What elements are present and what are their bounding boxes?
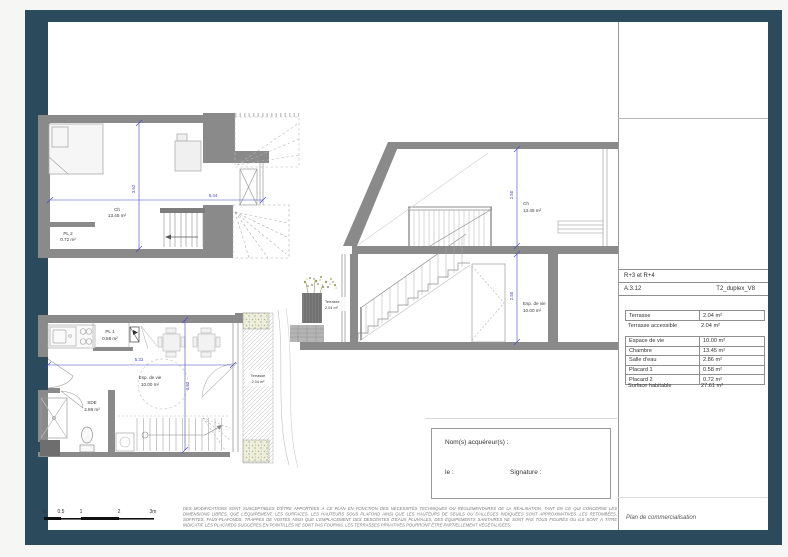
- area-row-terrasse-accessible: Terrasse accessible 2.04 m²: [625, 321, 763, 330]
- entry-door: [48, 359, 73, 388]
- plants: [304, 276, 337, 293]
- area-row-surface-habitable: Surface habitable 27.61 m²: [625, 381, 763, 390]
- lower-height-dim: 3.52: [185, 381, 190, 390]
- section-bedroom-area: 13.45 m²: [523, 208, 542, 213]
- area-label: Terrasse: [626, 311, 700, 320]
- balcony-door: [240, 163, 263, 205]
- disclaimer-text: DES MODIFICATIONS SONT SUSCEPTIBLES D'ÊT…: [183, 506, 617, 528]
- area-row-placard-1: Placard 1 0.58 m²: [626, 366, 764, 376]
- doc-type-label: Plan de commercialisation: [626, 515, 696, 521]
- bathroom-label: SDE: [87, 400, 96, 405]
- plan-name: T2_duplex_V8: [624, 283, 755, 295]
- area-label: Placard 1: [626, 366, 700, 375]
- terrace-strip: Terrasse 2.04 m²: [243, 308, 298, 468]
- terrace-area: 2.04 m²: [252, 380, 266, 384]
- scale-label: 1: [80, 509, 83, 515]
- living-area: 10.00 m²: [141, 382, 160, 387]
- scale-label: 2: [118, 509, 121, 515]
- separator-line: [425, 418, 617, 419]
- scale-label: 3m: [150, 509, 157, 515]
- section-bedroom-label: Ch: [523, 201, 529, 206]
- scale-bar: 0 0.5 1 2 3m: [40, 504, 165, 526]
- area-value: 0.58 m²: [700, 367, 722, 373]
- scale-bar-segments: [44, 517, 154, 520]
- landscape-line: [286, 308, 298, 468]
- bedroom-label: Ch: [114, 207, 120, 212]
- upper-height-dim: 3.52: [131, 184, 136, 193]
- section-living-area: 10.00 m²: [523, 308, 542, 313]
- buyer-title: Nom(s) acquéreur(s) :: [445, 439, 509, 446]
- area-label: Chambre: [626, 347, 700, 356]
- area-label: Espace de vie: [626, 337, 700, 346]
- bathroom-area: 2.86 m²: [84, 407, 100, 412]
- scale-label: 0: [43, 509, 46, 515]
- section-terrace-area: 2.04 m²: [325, 306, 339, 310]
- hall-door: [141, 326, 157, 349]
- bed: [49, 124, 103, 174]
- upper-right-wall: [603, 149, 607, 246]
- duct-symbol: [130, 327, 139, 342]
- terrace-door: [202, 363, 237, 397]
- kitchen: [48, 325, 95, 348]
- scale-label: 0.5: [58, 509, 65, 515]
- section-terrace-label: Terrasse: [325, 300, 340, 304]
- lower-floor-plan: Terrasse 2.04 m² 5.32 3.52 Esp. de vie 1…: [35, 300, 300, 470]
- upper-floor-plan: 3.52 5.44 Ch 13.45 m² PL 2 0.72 m²: [35, 105, 312, 267]
- area-label: Terrasse accessible: [625, 323, 698, 329]
- living-label: Esp. de vie: [139, 375, 162, 380]
- area-value: 2.04 m²: [700, 313, 722, 319]
- title-block-line: [618, 118, 768, 119]
- title-block-divider: [618, 22, 619, 530]
- lower-level-height: 2.50: [509, 291, 514, 300]
- washer: [116, 433, 134, 451]
- upper-level-height: 2.50: [509, 190, 514, 199]
- lower-width-dim: 5.32: [135, 357, 144, 362]
- closet1-outline: [93, 323, 129, 347]
- area-row-chambre: Chambre 13.45 m²: [626, 347, 764, 357]
- section-door: [472, 264, 505, 342]
- area-value: 2.86 m²: [700, 357, 722, 363]
- area-row-salle-deau: Salle d'eau 2.86 m²: [626, 356, 764, 366]
- title-block-line: [618, 295, 768, 296]
- area-row-espace-de-vie: Espace de vie 10.00 m²: [626, 337, 764, 347]
- area-value: 2.04 m²: [698, 323, 720, 329]
- levels-label: R+3 et R+4: [624, 270, 655, 282]
- area-label: Salle d'eau: [626, 356, 700, 365]
- stairs-upper: [160, 208, 205, 247]
- area-value: 10.00 m²: [700, 338, 725, 344]
- closet2-label: PL 2: [63, 231, 73, 236]
- indoor-areas-table: Espace de vie 10.00 m² Chambre 13.45 m² …: [625, 336, 765, 385]
- landscape-line: [278, 310, 289, 465]
- glazing-wall: [233, 323, 238, 452]
- table-and-chair: [175, 134, 201, 171]
- footer-line: [618, 497, 768, 498]
- toilet: [80, 427, 94, 452]
- area-label: Surface habitable: [625, 383, 698, 389]
- closet2-area: 0.72 m²: [60, 237, 76, 242]
- wardrobe: [558, 221, 603, 233]
- area-row-terrasse: Terrasse 2.04 m²: [625, 310, 765, 321]
- area-value: 13.45 m²: [700, 348, 725, 354]
- upper-width-dim: 5.44: [209, 193, 218, 198]
- area-value: 27.61 m²: [698, 383, 723, 389]
- section-living-label: Esp. de vie: [523, 301, 546, 306]
- closet1-area: 0.58 m²: [102, 336, 118, 341]
- plan-sheet-page: 3.52 5.44 Ch 13.45 m² PL 2 0.72 m²: [0, 0, 788, 557]
- terrace-label: Terrasse: [251, 374, 266, 378]
- section-dimensions: [514, 146, 520, 345]
- bedroom-area: 13.45 m²: [108, 213, 127, 218]
- closet1-label: PL 1: [105, 329, 115, 334]
- lower-stairs: [118, 416, 230, 451]
- bathroom-door: [61, 391, 83, 408]
- buyer-date-label: le :: [445, 469, 454, 476]
- buyer-signature-label: Signature :: [510, 469, 541, 476]
- dining-tables: [158, 328, 220, 357]
- winder-stairs-dashed: [233, 205, 289, 258]
- section-view: Terrasse 2.04 m² 2.50 2.50 Ch 13.45 m² E…: [290, 135, 620, 350]
- buyer-box: Nom(s) acquéreur(s) : le : Signature :: [431, 428, 611, 499]
